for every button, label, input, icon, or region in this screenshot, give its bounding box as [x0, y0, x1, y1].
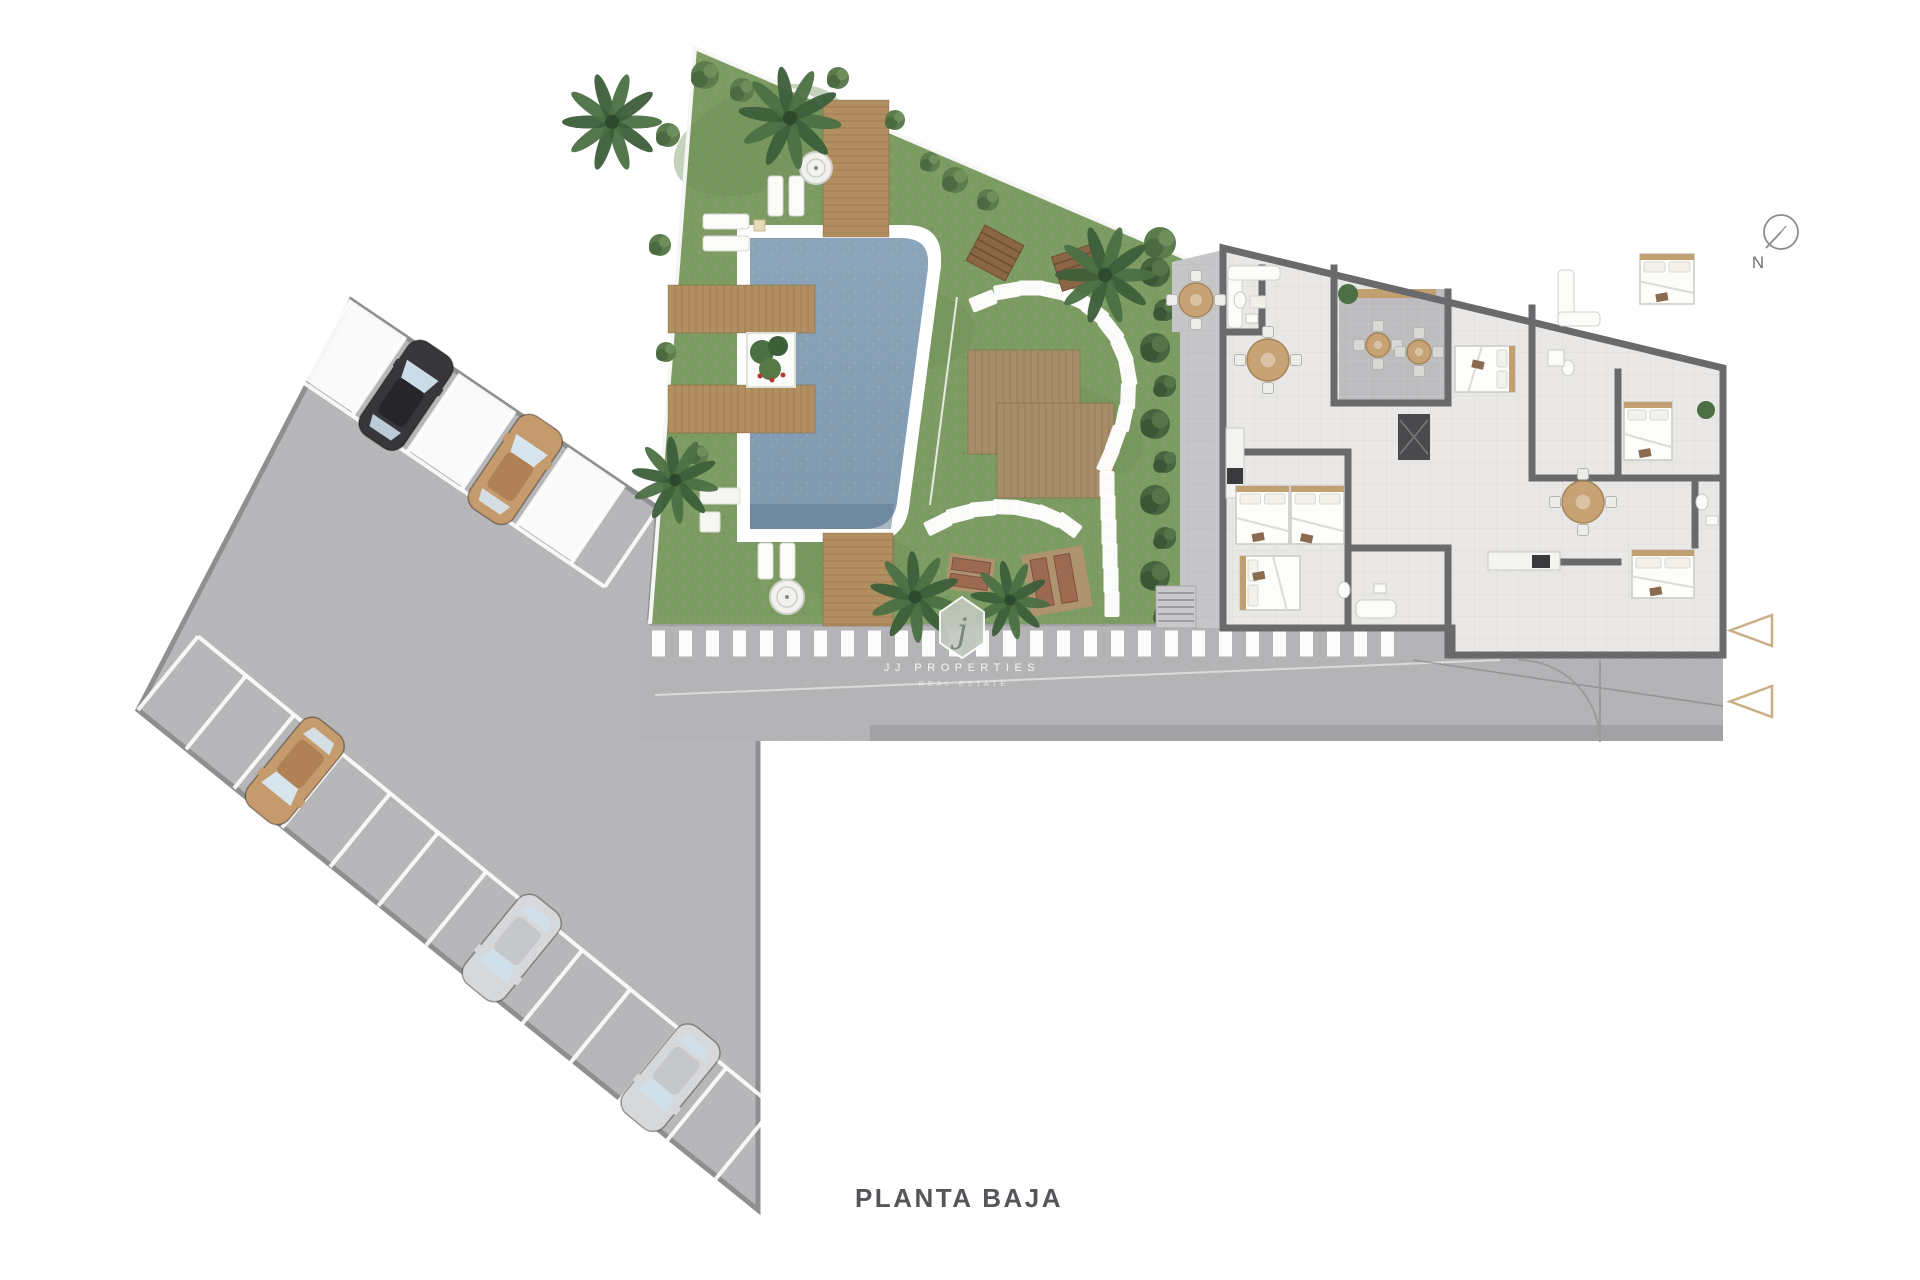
bush: [1144, 227, 1176, 259]
crosswalk-stripe: [868, 631, 881, 657]
chair: [1373, 359, 1384, 370]
chair: [1550, 497, 1561, 508]
stepping-stone: [1103, 543, 1118, 569]
lounger: [768, 176, 783, 216]
plan-title: PLANTA BAJA: [855, 1183, 1063, 1213]
planter-flower: [758, 374, 763, 379]
sink: [1706, 516, 1718, 525]
bush-foliage: [697, 447, 707, 457]
crosswalk-stripe: [1327, 631, 1340, 657]
chair: [1263, 383, 1274, 394]
kitchen-appliance: [1227, 468, 1243, 484]
crosswalk-stripe: [1246, 631, 1259, 657]
table-center: [1576, 495, 1591, 510]
bed-pillow: [1636, 558, 1661, 568]
bed-pillow: [1295, 494, 1316, 504]
bush: [649, 234, 671, 256]
bed: [1240, 556, 1300, 610]
sink: [1246, 314, 1258, 323]
bush: [885, 110, 905, 130]
kitchen-cooktop: [1532, 555, 1550, 568]
bed-headboard: [1236, 486, 1289, 492]
chair: [1235, 355, 1246, 366]
palm-trunk: [605, 115, 619, 129]
bush-foliage: [929, 154, 939, 164]
crosswalk-stripe: [652, 631, 665, 657]
chair: [1167, 295, 1178, 306]
table-center: [1374, 341, 1382, 349]
crosswalk-stripe: [1354, 631, 1367, 657]
chair: [1578, 469, 1589, 480]
bed-pillow: [1669, 262, 1690, 272]
bed-pillow: [1248, 585, 1258, 606]
site-plan-page: j JJ PROPERTIES REAL ESTATE N PLANTA BAJ…: [0, 0, 1920, 1280]
hedge-foliage: [1152, 488, 1169, 505]
stepping-stone: [969, 500, 996, 517]
chair: [1354, 340, 1365, 351]
table-center: [1415, 348, 1423, 356]
shower: [1548, 350, 1564, 366]
hedge-foliage: [1152, 336, 1169, 353]
bed: [1291, 486, 1344, 544]
kitchen: [1488, 552, 1560, 570]
bush: [942, 167, 968, 193]
site-plan-drawing: j JJ PROPERTIES REAL ESTATE N PLANTA BAJ…: [0, 0, 1920, 1280]
watermark-tagline: REAL ESTATE: [919, 681, 1009, 688]
hedge-bush: [1140, 409, 1170, 439]
pool-planter: [747, 333, 795, 387]
bed: [1236, 486, 1289, 544]
crosswalk-stripe: [895, 631, 908, 657]
lounger: [789, 176, 804, 216]
bed-headboard: [1624, 402, 1672, 408]
crosswalk-stripe: [1219, 631, 1232, 657]
palm-trunk: [783, 111, 798, 126]
bush-foliage: [894, 112, 904, 122]
road-curb: [870, 725, 1723, 741]
bush-foliage: [741, 80, 753, 92]
planter-plant: [768, 336, 788, 356]
toilet: [1338, 582, 1350, 598]
bed-pillow: [1497, 350, 1507, 367]
table-center: [1261, 353, 1276, 368]
bed: [1455, 346, 1515, 392]
bed-pillow: [1665, 558, 1690, 568]
crosswalk-stripe: [1300, 631, 1313, 657]
side-table: [754, 220, 765, 231]
bed: [1632, 550, 1694, 598]
stepping-stone: [1105, 591, 1120, 617]
bed-pillow: [1644, 262, 1665, 272]
bed-headboard: [1291, 486, 1344, 492]
lounger: [780, 543, 795, 579]
hedge-foliage: [1164, 528, 1176, 540]
bush-foliage: [665, 344, 675, 354]
bed-pillow: [1265, 494, 1286, 504]
lounger: [703, 214, 749, 229]
hedge-foliage: [1153, 307, 1167, 321]
bush-foliage: [1158, 230, 1174, 246]
bed-headboard: [1509, 346, 1515, 392]
parasol-pole: [785, 595, 789, 599]
crosswalk-stripe: [1381, 631, 1394, 657]
hedge-foliage: [1153, 535, 1167, 549]
bush: [920, 152, 940, 172]
bed-pillow: [1320, 494, 1341, 504]
bush: [730, 78, 754, 102]
bush-foliage: [667, 125, 679, 137]
sofa-seat: [1228, 266, 1280, 280]
chair: [1291, 355, 1302, 366]
hedge-foliage: [1152, 564, 1169, 581]
planter-flower: [781, 373, 786, 378]
chair: [1373, 321, 1384, 332]
crosswalk-stripe: [1273, 631, 1286, 657]
crosswalk-stripe: [814, 631, 827, 657]
toilet: [1234, 292, 1246, 308]
bed-pillow: [1497, 371, 1507, 388]
palm-trunk: [909, 591, 922, 604]
crosswalk-stripe: [1084, 631, 1097, 657]
hedge-foliage: [1164, 376, 1176, 388]
sofa-seat: [1558, 312, 1600, 326]
lounger: [703, 236, 749, 251]
bed-pillow: [1628, 410, 1646, 420]
bush: [656, 123, 680, 147]
stepping-stone: [1101, 495, 1116, 521]
crosswalk-stripe: [922, 631, 935, 657]
toilet: [1696, 494, 1708, 510]
crosswalk-stripe: [787, 631, 800, 657]
bed-mattress: [1632, 550, 1694, 598]
bush-foliage: [837, 69, 848, 80]
chair: [1191, 319, 1202, 330]
chair: [1215, 295, 1226, 306]
bush-foliage: [659, 236, 670, 247]
crosswalk-stripe: [706, 631, 719, 657]
hedge-foliage: [1152, 412, 1169, 429]
stepping-stone: [1018, 281, 1044, 296]
bed-pillow: [1240, 494, 1261, 504]
bed-pillow: [1650, 410, 1668, 420]
coffee-table: [1250, 296, 1266, 308]
bed-headboard: [1640, 254, 1694, 260]
deck-pool-left: [668, 385, 815, 433]
crosswalk-stripe: [1138, 631, 1151, 657]
crosswalk-stripe: [1030, 631, 1043, 657]
palm-trunk: [1098, 268, 1112, 282]
compass-north-label: N: [1752, 253, 1764, 272]
hedge-bush: [1140, 485, 1170, 515]
chair: [1414, 366, 1425, 377]
crosswalk-stripe: [841, 631, 854, 657]
chair: [1395, 347, 1406, 358]
palm-trunk: [1004, 594, 1015, 605]
crosswalk: [648, 628, 1410, 658]
chair: [1414, 328, 1425, 339]
terrace-plant: [1697, 401, 1715, 419]
stepping-stone: [1100, 471, 1115, 497]
table-center: [1190, 294, 1202, 306]
chair: [1578, 525, 1589, 536]
terrace-plant: [1338, 284, 1358, 304]
hedge-foliage: [1153, 383, 1167, 397]
chair: [1433, 347, 1444, 358]
bathtub: [1356, 600, 1396, 618]
crosswalk-stripe: [1165, 631, 1178, 657]
crosswalk-stripe: [1111, 631, 1124, 657]
crosswalk-stripe: [679, 631, 692, 657]
crosswalk-stripe: [760, 631, 773, 657]
chair: [1191, 271, 1202, 282]
chair: [1263, 327, 1274, 338]
crosswalk-stripe: [733, 631, 746, 657]
pool-pad: [700, 512, 720, 532]
bush: [977, 189, 999, 211]
bush: [691, 61, 719, 89]
crosswalk-stripe: [1057, 631, 1070, 657]
bed: [1640, 254, 1694, 304]
sink: [1374, 584, 1386, 593]
lounger: [758, 543, 773, 579]
stepping-stone: [1104, 567, 1119, 593]
crosswalk-stripe: [1192, 631, 1205, 657]
bush-foliage: [987, 191, 998, 202]
hedge-foliage: [1164, 452, 1176, 464]
bush: [656, 342, 676, 362]
parasol-pole: [814, 166, 818, 170]
hedge-bush: [1140, 333, 1170, 363]
deck-platform: [997, 403, 1114, 498]
watermark-brand: JJ PROPERTIES: [884, 662, 1040, 674]
hedge-foliage: [1153, 459, 1167, 473]
bush-foliage: [704, 64, 718, 78]
pool-shadow-step: [750, 504, 894, 529]
bed-headboard: [1240, 556, 1246, 610]
stepping-stone: [1102, 519, 1117, 545]
bed: [1624, 402, 1672, 460]
bush: [827, 67, 849, 89]
bed-headboard: [1632, 550, 1694, 556]
palm-trunk: [669, 474, 681, 486]
deck-pool-left: [668, 285, 815, 333]
chair: [1606, 497, 1617, 508]
planter-flower: [770, 378, 775, 383]
bush-foliage: [954, 170, 967, 183]
